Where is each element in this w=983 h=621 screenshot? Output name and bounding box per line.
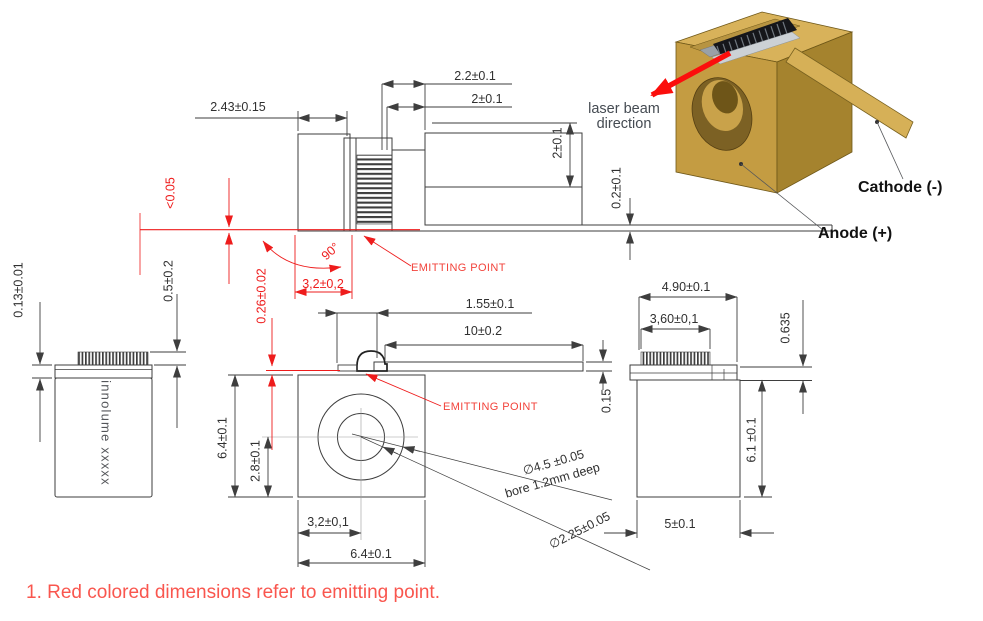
lead-bend-arch bbox=[357, 351, 387, 371]
dim-flatness: <0.05 bbox=[163, 177, 177, 209]
dim-top-lead-width: 2±0.1 bbox=[550, 127, 564, 158]
chip-fins-right bbox=[641, 352, 710, 365]
iso-view bbox=[652, 12, 913, 230]
dimension-texts: 2.43±0.15 2.2±0.1 2±0.1 2±0.1 0.2±0.1 <0… bbox=[11, 69, 792, 561]
front-view-dimension-lines bbox=[228, 313, 612, 567]
engineering-drawing: 2.43±0.15 2.2±0.1 2±0.1 2±0.1 0.2±0.1 <0… bbox=[0, 0, 983, 621]
drawing-note: 1. Red colored dimensions refer to emitt… bbox=[26, 582, 440, 604]
part-marking: innolume xxxxx bbox=[99, 380, 114, 486]
dim-right-top-width: 4.90±0.1 bbox=[662, 280, 711, 294]
dim-left-chip-height: 0.5±0.2 bbox=[161, 260, 175, 302]
dim-top-chip-to-edge: 2±0.1 bbox=[471, 92, 502, 106]
dim-hole-diameter: ∅2.25±0.05 bbox=[547, 509, 613, 552]
dim-emitter-offset: 3,2±0,2 bbox=[302, 277, 344, 291]
dim-facet-angle: 90° bbox=[319, 240, 342, 263]
dim-front-body-width: 6.4±0.1 bbox=[350, 547, 392, 561]
dim-front-lead-thickness: 0.15 bbox=[599, 389, 613, 413]
dim-submount-thickness: 0.635 bbox=[778, 312, 792, 343]
wirebond-hatch bbox=[357, 155, 392, 224]
dim-right-body-width: 5±0.1 bbox=[664, 517, 695, 531]
anode-label: Anode (+) bbox=[818, 225, 892, 243]
dim-front-lead-length: 10±0.2 bbox=[464, 324, 502, 338]
dim-right-chip-width: 3,60±0,1 bbox=[650, 312, 699, 326]
dim-left-plate-thickness: 0.13±0.01 bbox=[11, 262, 25, 318]
emitting-point-leader-top bbox=[364, 236, 411, 266]
front-view-red-dimensions bbox=[266, 318, 441, 450]
laser-beam-direction-label: laser beam direction bbox=[573, 102, 675, 132]
bore-callout: ∅4.5 ±0.05 bore 1.2mm deep bbox=[499, 444, 602, 501]
cathode-label: Cathode (-) bbox=[858, 179, 942, 197]
cathode-lead-strip bbox=[374, 362, 583, 371]
dim-front-lead-inset: 1.55±0.1 bbox=[466, 297, 515, 311]
drawing-page: 2.43±0.15 2.2±0.1 2±0.1 2±0.1 0.2±0.1 <0… bbox=[0, 0, 983, 621]
dim-bore-center-height: 2.8±0.1 bbox=[248, 440, 262, 482]
emitting-point-leader-front bbox=[366, 374, 441, 406]
emitting-point-label-front: EMITTING POINT bbox=[443, 401, 538, 413]
dim-right-body-height: 6.1 ±0.1 bbox=[744, 417, 758, 462]
dim-front-body-height: 6.4±0.1 bbox=[215, 417, 229, 459]
front-view-outline bbox=[262, 351, 650, 570]
dim-bore-center-offset: 3,2±0,1 bbox=[307, 515, 349, 529]
chip-fins bbox=[78, 352, 148, 365]
emitting-point-label-top: EMITTING POINT bbox=[411, 262, 506, 274]
dim-top-body-width: 2.43±0.15 bbox=[210, 100, 266, 114]
dim-top-chip-width: 2.2±0.1 bbox=[454, 69, 496, 83]
dim-top-tail-thickness: 0.2±0.1 bbox=[609, 167, 623, 209]
right-view-outline bbox=[630, 352, 740, 497]
dim-emitter-height: 0.26±0.02 bbox=[254, 268, 268, 324]
